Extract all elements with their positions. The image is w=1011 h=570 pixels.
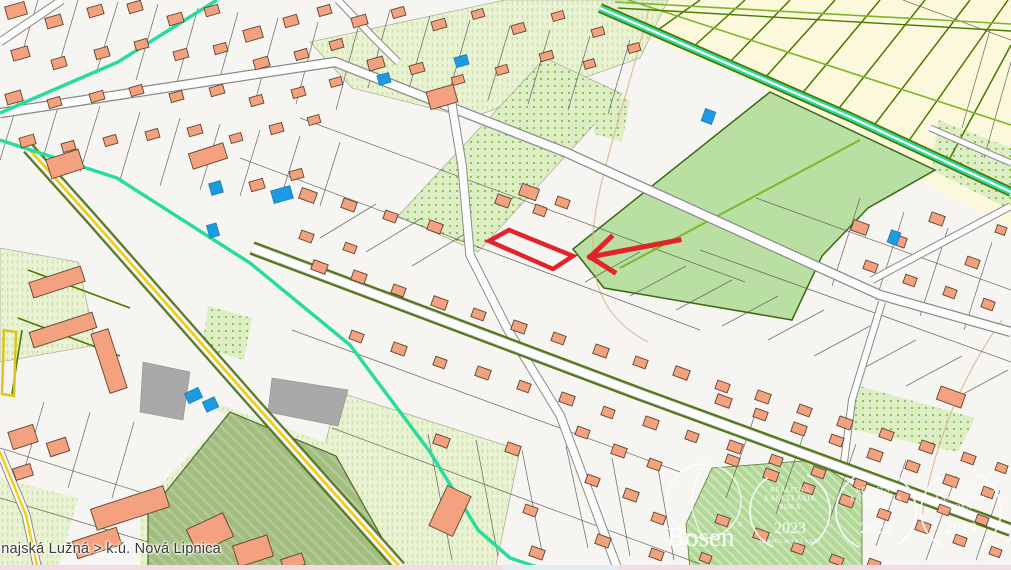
bottom-bar-segment [503, 565, 618, 570]
badge-subtitle: BRATISLAVSKÝ KRAJ [759, 537, 820, 545]
cadastre-breadcrumb: unajská Lužná > k.ú. Nová Lipnica [0, 541, 221, 557]
badge-title-line: ROKA [779, 503, 802, 511]
map-viewport: Bosen®REALITNÁKANCELÁRIAROKA2023BRATISLA… [0, 0, 1011, 570]
badge-title-line: KANCELÁRIA [850, 493, 902, 503]
badge-title-line: REALITNÁ [770, 484, 810, 494]
badge-title-line: REALITNÁ [941, 484, 981, 494]
badge-year: 2022 [860, 520, 892, 537]
badge-title-line: KANCELÁRIA [764, 493, 816, 503]
badge-year: 2019 [945, 520, 977, 537]
land-area [140, 362, 190, 420]
badge-year: 2023 [774, 520, 806, 537]
badge-title-line: REALITNÁ [856, 484, 896, 494]
bottom-bar [0, 565, 1011, 570]
cadastral-map[interactable]: Bosen®REALITNÁKANCELÁRIAROKA2023BRATISLA… [0, 0, 1011, 570]
bosen-logo-text: Bosen [667, 522, 735, 552]
badge-title-line: ROKA [950, 503, 973, 511]
badge-title-line: KANCELÁRIA [935, 493, 987, 503]
bosen-registered-mark: ® [737, 521, 743, 529]
badge-title-line: ROKA [865, 503, 888, 511]
